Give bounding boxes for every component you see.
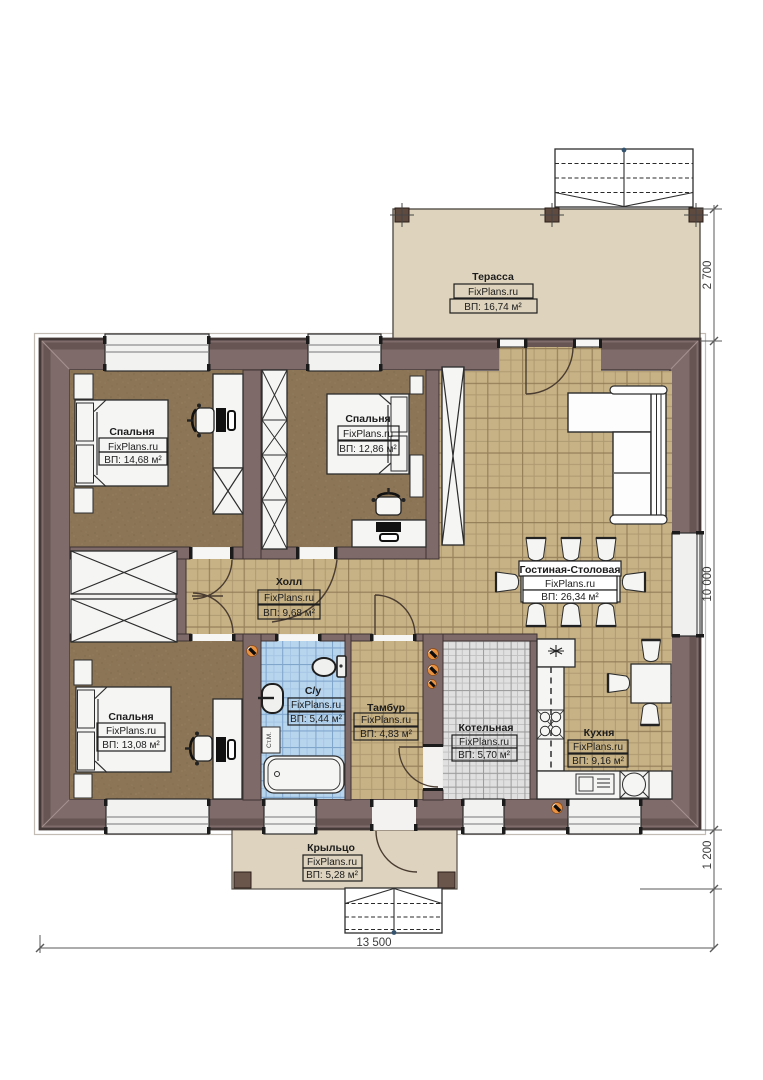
- svg-text:Спальня: Спальня: [109, 426, 154, 438]
- svg-text:Ст.М.: Ст.М.: [266, 732, 273, 748]
- svg-text:FixPlans.ru: FixPlans.ru: [468, 287, 518, 298]
- svg-text:Спальня: Спальня: [345, 413, 390, 425]
- svg-text:2 700: 2 700: [702, 261, 714, 290]
- svg-text:13 500: 13 500: [356, 937, 391, 949]
- svg-text:FixPlans.ru: FixPlans.ru: [307, 857, 357, 868]
- svg-text:FixPlans.ru: FixPlans.ru: [573, 742, 623, 753]
- svg-text:FixPlans.ru: FixPlans.ru: [459, 737, 509, 748]
- svg-text:Крыльцо: Крыльцо: [307, 842, 355, 854]
- svg-text:FixPlans.ru: FixPlans.ru: [264, 593, 314, 604]
- svg-text:ВП: 5,28 м²: ВП: 5,28 м²: [306, 870, 359, 881]
- svg-text:ВП: 16,74 м²: ВП: 16,74 м²: [464, 302, 522, 313]
- svg-text:FixPlans.ru: FixPlans.ru: [106, 726, 156, 737]
- svg-text:ВП: 14,68 м²: ВП: 14,68 м²: [104, 455, 162, 466]
- svg-text:ВП: 5,70 м²: ВП: 5,70 м²: [458, 750, 511, 761]
- svg-text:FixPlans.ru: FixPlans.ru: [545, 579, 595, 590]
- svg-text:Тамбур: Тамбур: [367, 702, 405, 714]
- svg-text:ВП: 5,44 м²: ВП: 5,44 м²: [290, 714, 343, 725]
- svg-text:FixPlans.ru: FixPlans.ru: [343, 429, 393, 440]
- svg-text:Котельная: Котельная: [459, 722, 514, 734]
- svg-text:1 200: 1 200: [702, 841, 714, 870]
- svg-text:Терасса: Терасса: [472, 271, 514, 283]
- svg-text:ВП: 4,83 м²: ВП: 4,83 м²: [360, 729, 413, 740]
- svg-text:С/у: С/у: [305, 685, 322, 697]
- svg-text:FixPlans.ru: FixPlans.ru: [108, 442, 158, 453]
- svg-text:Гостиная-Столовая: Гостиная-Столовая: [520, 564, 621, 576]
- svg-text:ВП: 13,08 м²: ВП: 13,08 м²: [102, 740, 160, 751]
- svg-text:FixPlans.ru: FixPlans.ru: [361, 715, 411, 726]
- svg-text:FixPlans.ru: FixPlans.ru: [291, 700, 341, 711]
- svg-text:ВП: 12,86 м²: ВП: 12,86 м²: [339, 444, 397, 455]
- svg-text:10 000: 10 000: [702, 566, 714, 601]
- svg-text:ВП: 26,34 м²: ВП: 26,34 м²: [541, 592, 599, 603]
- svg-text:ВП: 9,16 м²: ВП: 9,16 м²: [572, 756, 625, 767]
- svg-text:Спальня: Спальня: [108, 711, 153, 723]
- svg-text:ВП: 9,68 м²: ВП: 9,68 м²: [263, 608, 316, 619]
- svg-text:Холл: Холл: [276, 576, 302, 588]
- svg-text:Кухня: Кухня: [584, 727, 615, 739]
